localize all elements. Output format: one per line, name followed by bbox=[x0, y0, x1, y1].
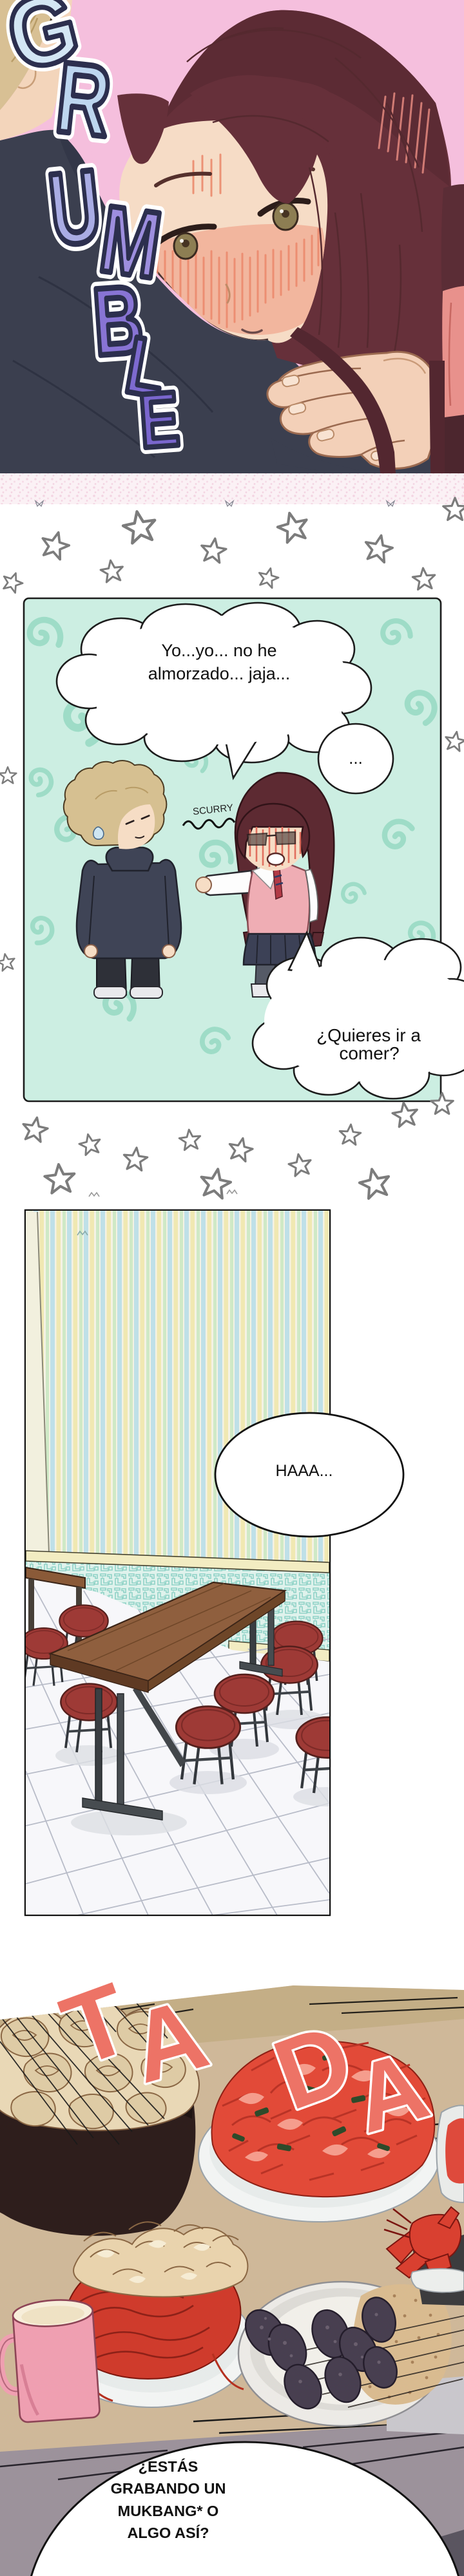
svg-text:¿Quieres ir a: ¿Quieres ir a bbox=[316, 1025, 421, 1045]
svg-text:E: E bbox=[137, 375, 182, 464]
svg-text:MUKBANG* O: MUKBANG* O bbox=[118, 2503, 219, 2519]
svg-text:...: ... bbox=[349, 748, 363, 768]
svg-text:¿ESTÁS: ¿ESTÁS bbox=[139, 2458, 198, 2475]
svg-text:HAAA...: HAAA... bbox=[276, 1462, 333, 1480]
svg-text:comer?: comer? bbox=[339, 1043, 399, 1063]
svg-text:GRABANDO UN: GRABANDO UN bbox=[111, 2480, 226, 2497]
svg-text:Yo...yo... no he: Yo...yo... no he bbox=[161, 641, 276, 660]
svg-text:almorzado... jaja...: almorzado... jaja... bbox=[148, 664, 291, 683]
svg-text:ALGO ASÍ?: ALGO ASÍ? bbox=[127, 2524, 209, 2541]
